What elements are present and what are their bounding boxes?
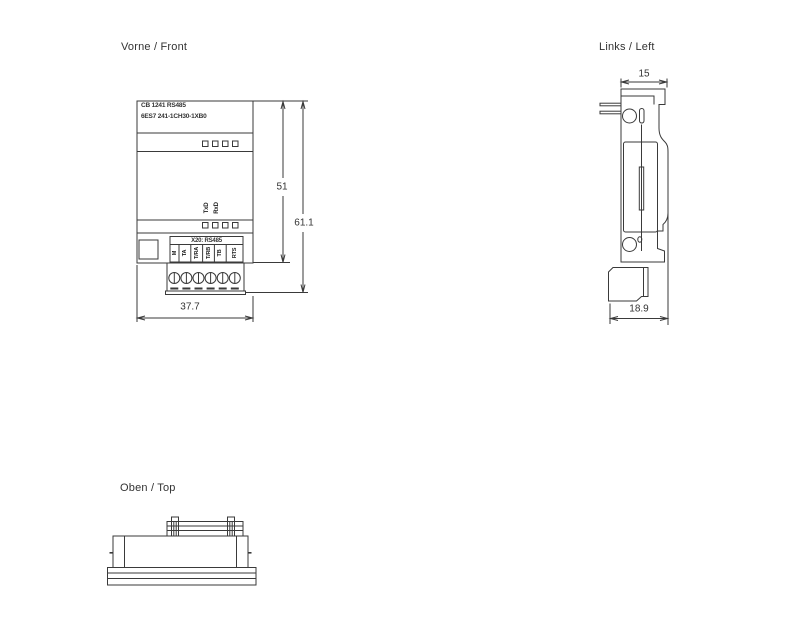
line-art — [0, 0, 800, 640]
rxd-led-label: RxD — [214, 202, 220, 213]
terminal-label-tb: TB — [217, 250, 223, 257]
front-led-row-top — [203, 141, 239, 147]
terminal-screws — [169, 273, 241, 284]
dim-left-top-width: 15 — [638, 69, 649, 80]
front-view-title: Vorne / Front — [121, 41, 187, 53]
terminal-label-tra: T/RA — [194, 247, 200, 259]
txd-led-label: TxD — [204, 203, 210, 214]
module-order-number-label: 6ES7 241-1CH30-1XB0 — [141, 113, 207, 120]
dim-front-total-height: 61.1 — [293, 218, 314, 229]
top-view-title: Oben / Top — [120, 482, 176, 494]
terminal-label-rts: RTS — [232, 248, 238, 258]
dim-front-width: 37.7 — [180, 302, 199, 313]
left-view-outline — [600, 89, 668, 325]
dim-front-body-height: 51 — [275, 182, 288, 193]
port-x20-label: X20: RS485 — [191, 238, 222, 244]
front-terminal-connector — [166, 263, 246, 295]
module-name-label: CB 1241 RS485 — [141, 102, 186, 109]
front-led-row-bottom — [203, 223, 239, 229]
terminal-label-ta: TA — [182, 250, 188, 257]
left-view-title: Links / Left — [599, 41, 655, 53]
terminal-label-m: M — [172, 251, 178, 255]
terminal-label-trb: T/RB — [206, 247, 212, 259]
dim-left-bottom-depth: 18.9 — [629, 304, 648, 315]
dimension-drawing-canvas: Vorne / Front Links / Left Oben / Top CB… — [0, 0, 800, 640]
top-view-outline — [108, 517, 257, 585]
